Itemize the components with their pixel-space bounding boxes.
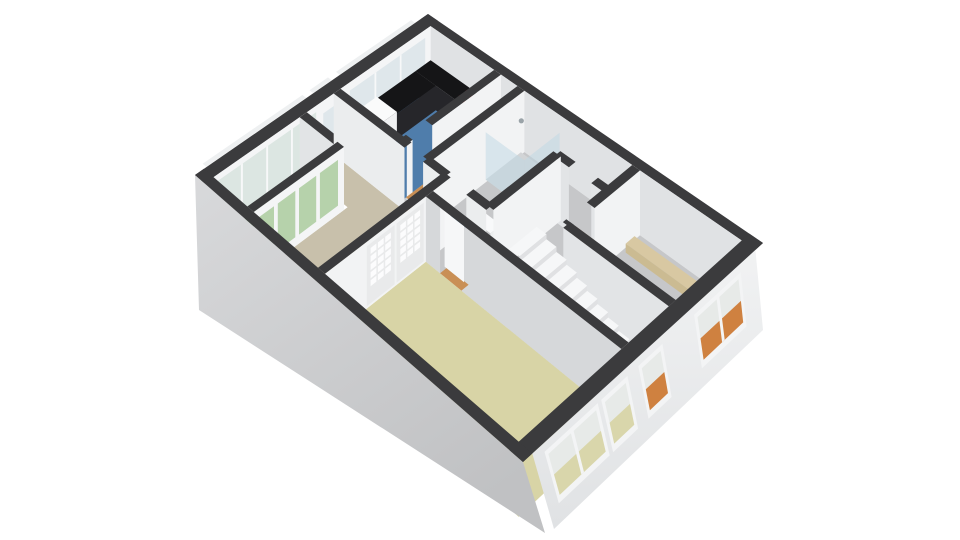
floor-plan-3d-canvas (0, 0, 960, 540)
shower-head (519, 118, 524, 123)
balcony-glazing-glass-mullion (291, 128, 293, 178)
living-ne-face (426, 197, 440, 274)
balcony-glazing-glass-mullion (266, 146, 268, 197)
floor-plan-viewer (0, 0, 960, 540)
